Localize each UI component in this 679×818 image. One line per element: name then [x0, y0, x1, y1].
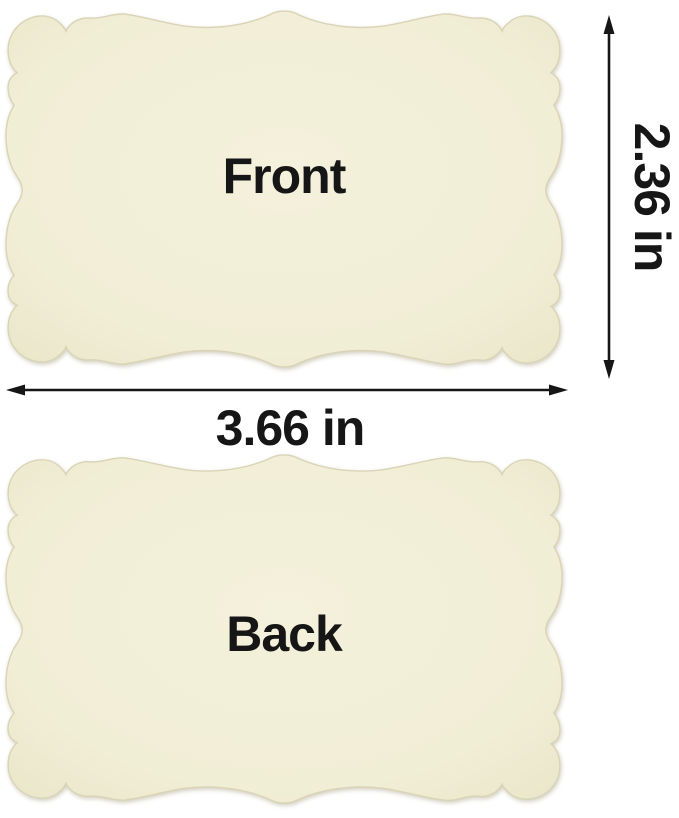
front-card: Front [5, 6, 563, 372]
front-card-label: Front [223, 147, 346, 205]
width-dimension-arrow [6, 379, 568, 401]
arrow-head-bottom [604, 360, 615, 379]
double-headed-arrow-vertical-icon [598, 15, 620, 379]
arrow-head-right [549, 385, 568, 396]
double-headed-arrow-horizontal-icon [6, 379, 568, 401]
product-dimension-diagram: Front Back 2.36 in [0, 0, 679, 818]
height-dimension-label: 2.36 in [623, 123, 679, 272]
back-card-label: Back [226, 605, 342, 663]
back-card: Back [5, 450, 563, 808]
width-dimension-label: 3.66 in [216, 399, 365, 457]
height-dimension-arrow [598, 15, 620, 379]
